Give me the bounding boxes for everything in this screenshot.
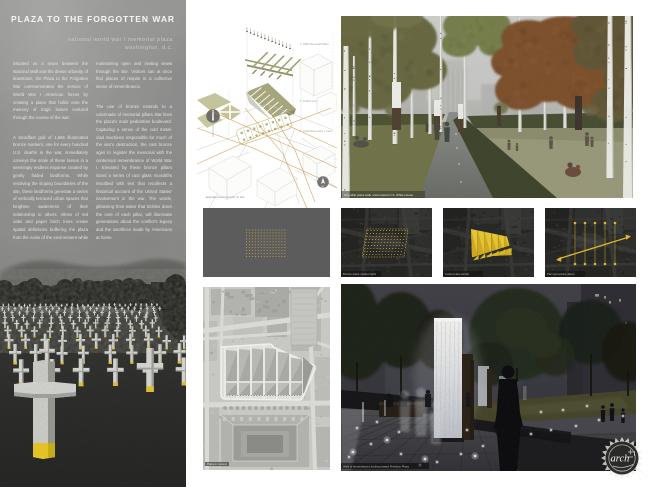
svg-text:arch: arch xyxy=(611,454,630,465)
svg-text:N: N xyxy=(322,185,324,189)
svg-text:Exploded axonometric of site: Exploded axonometric of site xyxy=(206,195,245,199)
svg-text:4. WWI Memorial Pillars: 4. WWI Memorial Pillars xyxy=(300,42,329,46)
svg-text:Bronze plaza marker lights: Bronze plaza marker lights xyxy=(343,272,377,276)
svg-text:Plaza in context: Plaza in context xyxy=(207,462,227,466)
svg-text:One-Mile plaza walk, view towa: One-Mile plaza walk, view toward U.S. Wh… xyxy=(344,193,414,197)
svg-text:Walk of remembrance looking to: Walk of remembrance looking toward Freed… xyxy=(343,464,409,468)
svg-text:Folded plate terrain: Folded plate terrain xyxy=(445,272,470,276)
svg-text:Plan generative datum: Plan generative datum xyxy=(547,272,576,276)
svg-text:1. Pedestrian paths + trees: 1. Pedestrian paths + trees xyxy=(300,129,333,133)
